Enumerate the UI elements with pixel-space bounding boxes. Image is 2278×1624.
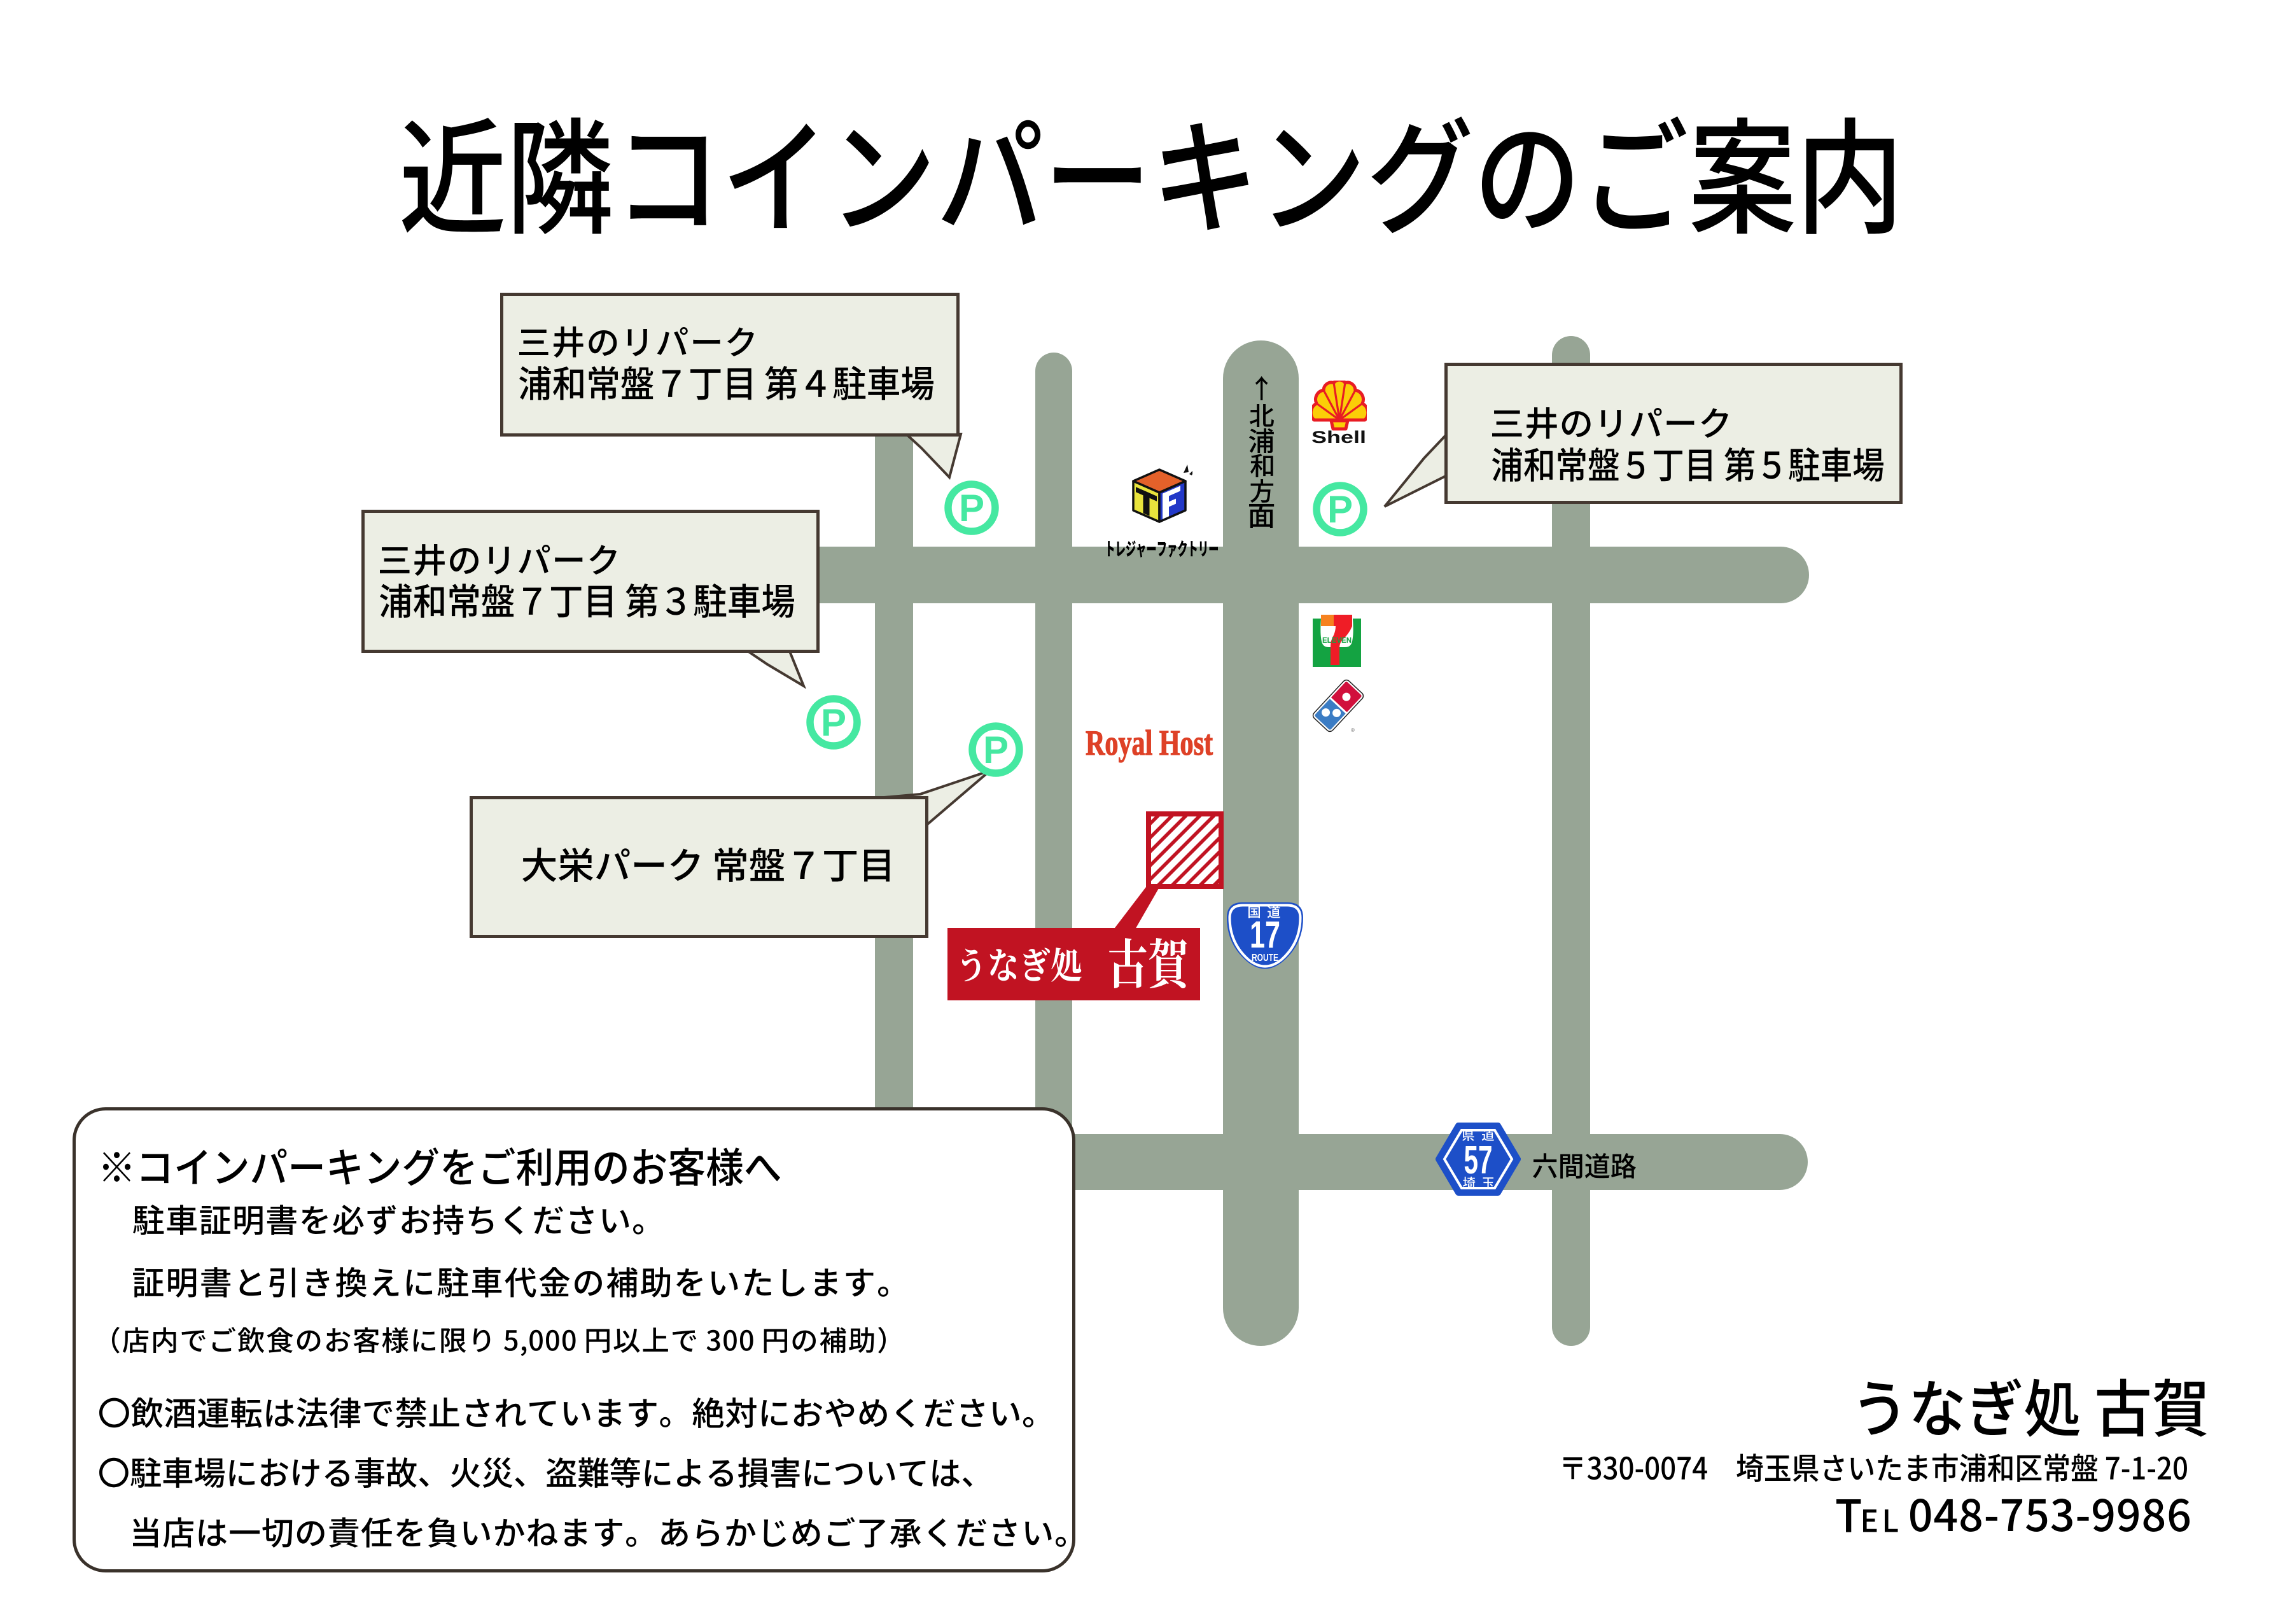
svg-text:P: P — [983, 729, 1009, 771]
svg-text:17: 17 — [1250, 914, 1280, 956]
svg-text:57: 57 — [1464, 1138, 1493, 1182]
svg-text:Royal Host: Royal Host — [1086, 728, 1213, 763]
svg-text:ROUTE: ROUTE — [1252, 953, 1278, 963]
svg-text:Shell: Shell — [1311, 428, 1366, 447]
svg-text:ELEVEN: ELEVEN — [1322, 636, 1352, 645]
svg-text:P: P — [1327, 488, 1353, 531]
svg-text:P: P — [821, 701, 846, 744]
svg-text:P: P — [959, 487, 984, 529]
svg-text:®: ® — [1351, 727, 1355, 733]
